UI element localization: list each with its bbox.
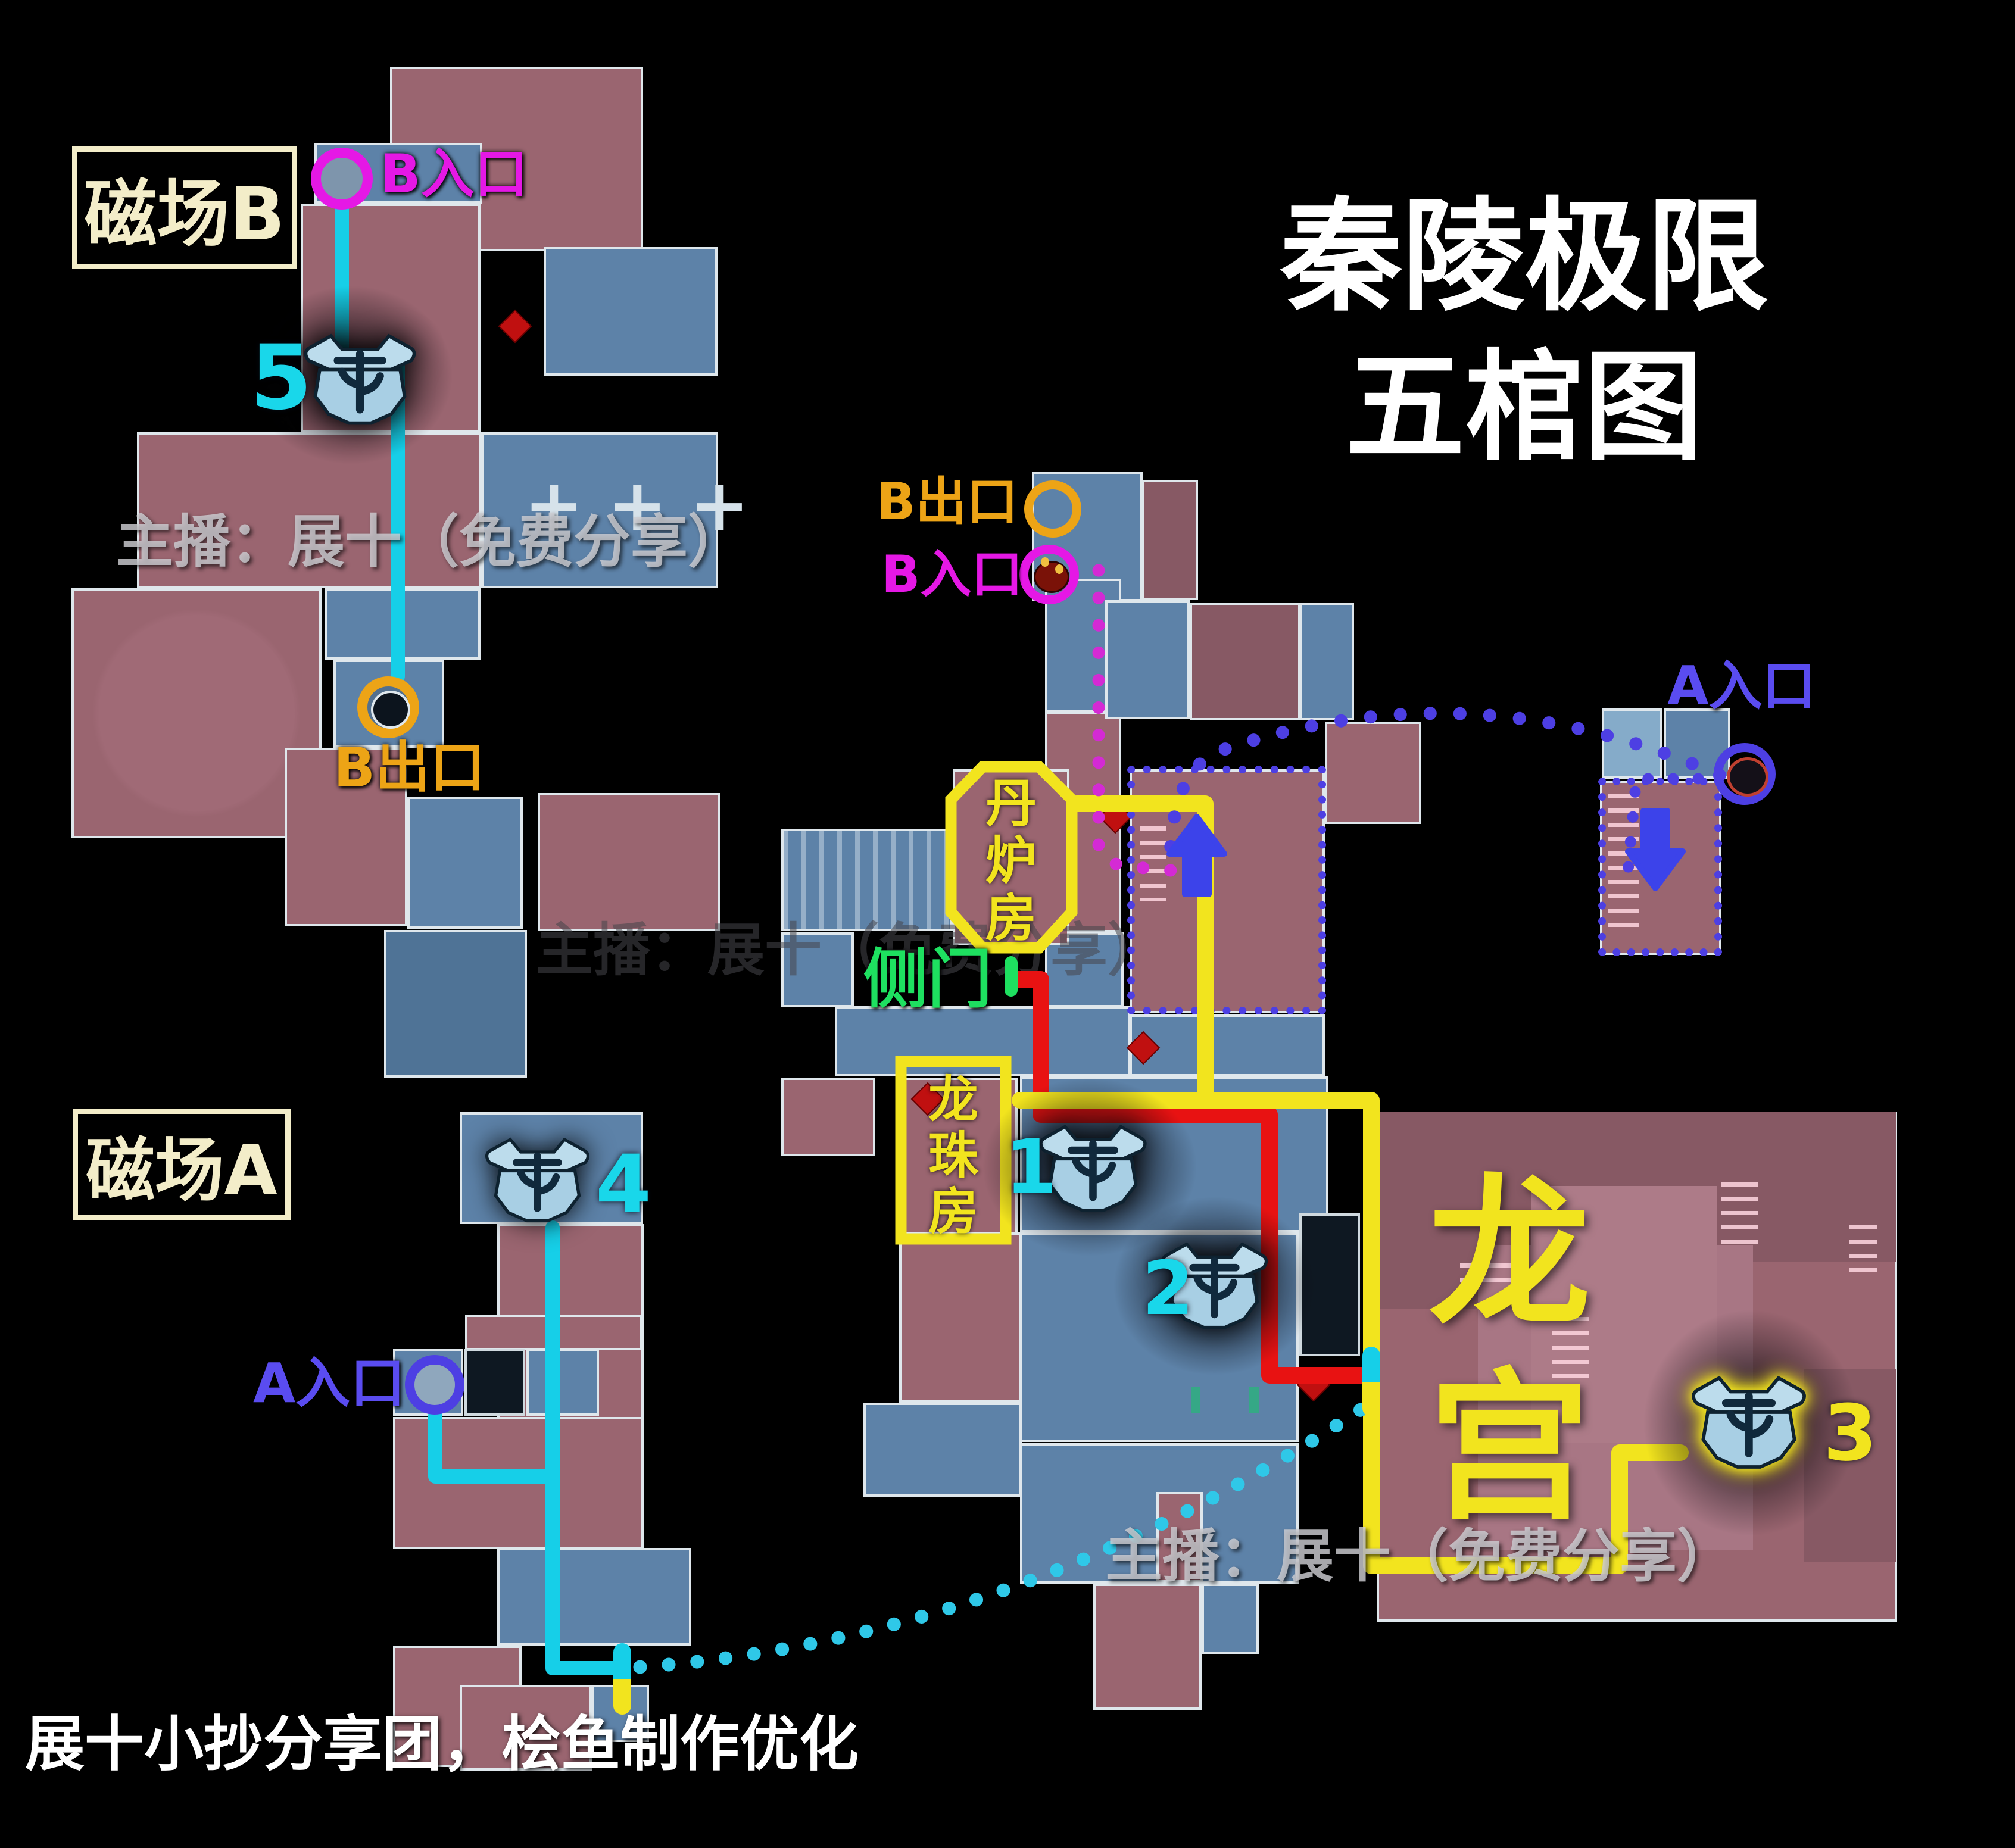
portal-label-b-exit-top: B出口 (333, 741, 485, 795)
portal-label-b-entrance-top: B入口 (380, 148, 528, 201)
coffin-icon-4 (470, 1131, 604, 1235)
dan-lu-fang-label: 丹 炉 房 (952, 775, 1071, 947)
map-title-line1: 秦陵极限 (1262, 196, 1786, 319)
portal-label-b-exit-mid: B出口 (877, 476, 1018, 527)
watermark-top: 主播：展十（免费分享） (116, 513, 745, 570)
b-entrance-top-ring (311, 148, 373, 210)
up-arrow-icon (1169, 817, 1224, 894)
route-cyan-a (435, 1228, 616, 1668)
coffin-number-5: 5 (250, 333, 312, 423)
watermark-bottom: 主播：展十（免费分享） (1105, 1528, 1734, 1585)
tunnel-hole-icon (371, 691, 410, 729)
portal-label-a-entrance-right: A入口 (1667, 660, 1816, 713)
long-zhu-fang-label: 龙 珠 房 (894, 1072, 1013, 1240)
down-arrow-icon (1628, 811, 1683, 888)
qinling-map: + + + (0, 0, 2015, 1848)
long-gong-label: 龙 宫 (1417, 1157, 1602, 1546)
a-entrance-left-disc (405, 1355, 464, 1415)
coffin-number-4: 4 (595, 1144, 651, 1225)
side-door-marker (1005, 956, 1018, 997)
route-transition-capsule (1362, 1347, 1380, 1417)
b-exit-mid-ring (1024, 480, 1081, 538)
zone-label-field-b: 磁场B (85, 155, 285, 261)
zone-label-field-a: 磁场A (86, 1115, 277, 1215)
coffin-number-3: 3 (1823, 1394, 1877, 1472)
side-door-label: 侧门 (863, 948, 992, 1012)
coffin-icon-3 (1680, 1354, 1817, 1497)
portal-label-b-entrance-mid: B入口 (881, 549, 1023, 600)
monster-face-icon (1034, 561, 1069, 593)
route-magenta-dotted (1099, 570, 1171, 870)
monster-eye (1041, 557, 1049, 567)
credit-text: 展十小抄分享团，桧鱼制作优化 (25, 1715, 859, 1774)
coffin-icon-5 (293, 326, 427, 439)
zone-box-field-b: 磁场B (72, 146, 297, 269)
portal-label-a-entrance-left: A入口 (253, 1356, 405, 1411)
coffin-number-1: 1 (1005, 1130, 1057, 1204)
route-blue-dotted (1171, 713, 1720, 850)
monster-eye (1055, 564, 1063, 574)
zone-box-field-a: 磁场A (73, 1109, 291, 1220)
tunnel-hole-icon (1727, 757, 1768, 797)
map-title-line2: 五棺图 (1262, 348, 1786, 467)
route-transition-capsule (613, 1643, 631, 1715)
coffin-number-2: 2 (1142, 1251, 1194, 1326)
